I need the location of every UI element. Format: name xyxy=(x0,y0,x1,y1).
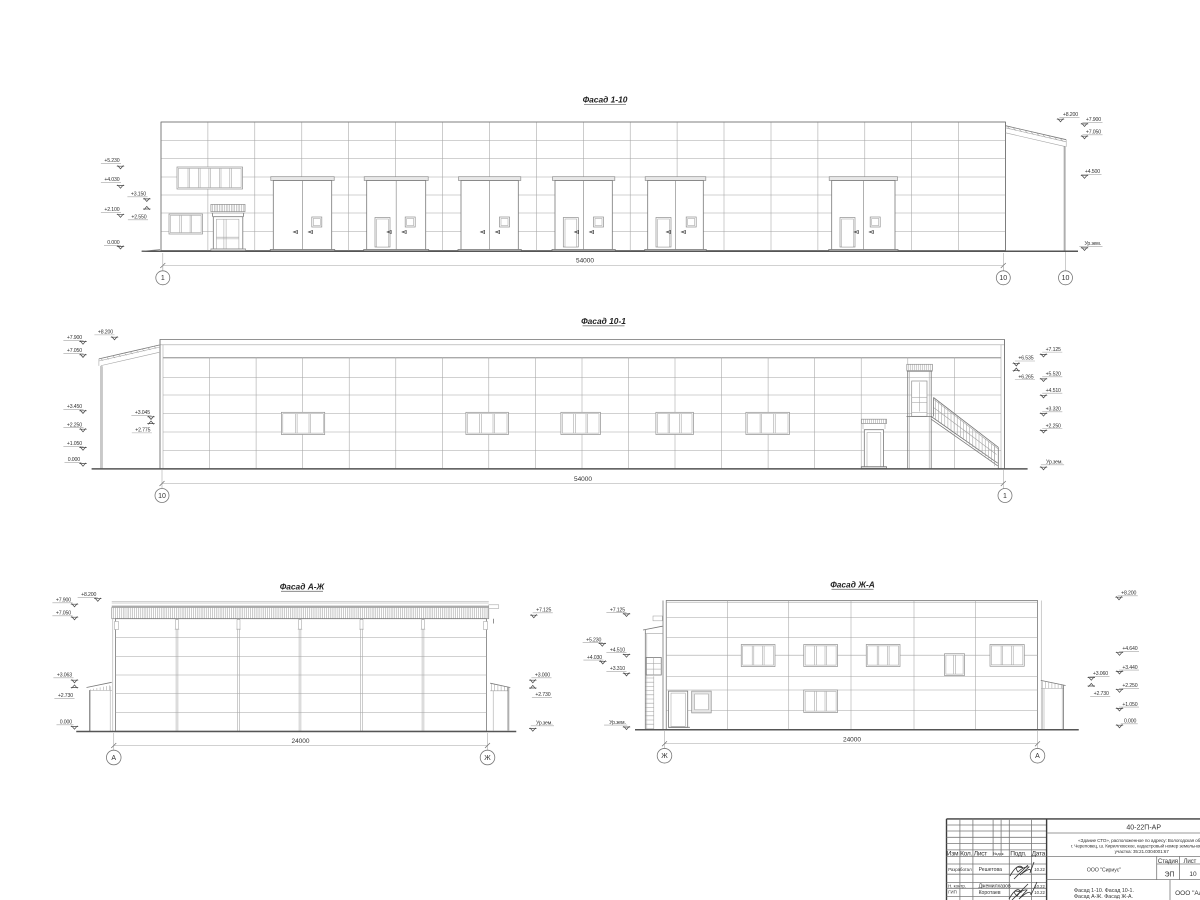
svg-text:Фасад А-Ж. Фасад Ж-А.: Фасад А-Ж. Фасад Ж-А. xyxy=(1074,894,1133,900)
svg-text:Дата: Дата xyxy=(1032,850,1046,857)
svg-text:Изм: Изм xyxy=(947,850,959,857)
svg-text:А: А xyxy=(1035,753,1040,760)
svg-text:24000: 24000 xyxy=(843,737,861,744)
svg-text:ООО "Альянс: ООО "Альянс xyxy=(1175,890,1200,897)
svg-text:Разработал: Разработал xyxy=(948,867,972,872)
svg-text:Решетова: Решетова xyxy=(979,867,1003,873)
svg-text:Фасад 10-1: Фасад 10-1 xyxy=(581,316,626,326)
svg-text:А: А xyxy=(111,755,116,762)
svg-text:10: 10 xyxy=(999,275,1007,282)
svg-text:ЭП: ЭП xyxy=(1164,871,1174,878)
svg-text:Лист: Лист xyxy=(1183,858,1196,865)
svg-text:«Здание СТО», расположенное по: «Здание СТО», расположенное по адресу: В… xyxy=(1078,838,1200,843)
svg-text:г. Череповец, ш. Кирилловское,: г. Череповец, ш. Кирилловское, кадастров… xyxy=(1071,843,1200,849)
svg-text:10.22: 10.22 xyxy=(1034,867,1045,872)
svg-text:10: 10 xyxy=(158,493,166,500)
svg-text:№док.: №док. xyxy=(993,852,1004,856)
svg-text:ООО "Сириус": ООО "Сириус" xyxy=(1087,867,1121,873)
svg-text:Джемилхазов: Джемилхазов xyxy=(979,884,1011,890)
svg-text:ГИП: ГИП xyxy=(948,890,957,895)
svg-text:54000: 54000 xyxy=(576,258,594,265)
svg-text:Лист: Лист xyxy=(974,850,987,857)
svg-text:10: 10 xyxy=(1062,275,1070,282)
svg-text:участка: 35:21.0304001:67: участка: 35:21.0304001:67 xyxy=(1115,849,1170,854)
svg-text:Подп.: Подп. xyxy=(1010,850,1026,857)
svg-text:24000: 24000 xyxy=(291,738,309,745)
svg-text:1: 1 xyxy=(1003,493,1007,500)
svg-text:1: 1 xyxy=(161,275,165,282)
svg-text:Ж: Ж xyxy=(661,753,668,760)
svg-text:Кол.: Кол. xyxy=(960,850,972,857)
svg-text:Н. контр.: Н. контр. xyxy=(948,883,966,888)
svg-text:Стадия: Стадия xyxy=(1158,858,1178,865)
svg-text:40-22П-АР: 40-22П-АР xyxy=(1126,825,1161,832)
svg-text:54000: 54000 xyxy=(574,476,592,483)
svg-text:Фасад А-Ж: Фасад А-Ж xyxy=(280,581,326,591)
svg-text:Коротаев: Коротаев xyxy=(979,890,1001,896)
svg-text:10.22: 10.22 xyxy=(1034,890,1045,895)
svg-text:Ж: Ж xyxy=(484,755,491,762)
svg-text:Фасад Ж-А: Фасад Ж-А xyxy=(830,579,875,589)
svg-text:Фасад 1-10: Фасад 1-10 xyxy=(583,95,628,105)
svg-text:10: 10 xyxy=(1189,871,1197,878)
